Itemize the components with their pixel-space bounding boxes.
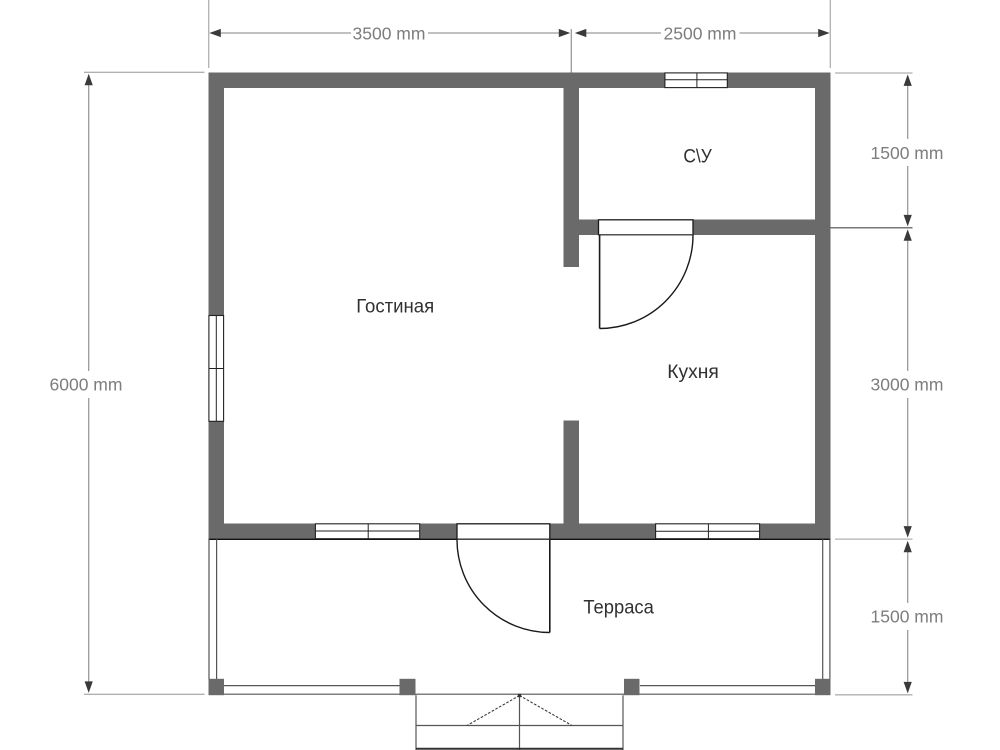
svg-text:1500 mm: 1500 mm [871, 143, 944, 163]
svg-text:2500 mm: 2500 mm [664, 23, 737, 43]
svg-text:Гостиная: Гостиная [356, 296, 434, 318]
svg-text:1500 mm: 1500 mm [871, 607, 944, 627]
svg-text:3000 mm: 3000 mm [871, 375, 944, 395]
svg-text:6000 mm: 6000 mm [50, 375, 123, 395]
svg-text:3500 mm: 3500 mm [353, 23, 426, 43]
svg-text:С\У: С\У [683, 146, 712, 168]
svg-text:Кухня: Кухня [667, 361, 719, 383]
svg-text:Терраса: Терраса [583, 597, 654, 619]
